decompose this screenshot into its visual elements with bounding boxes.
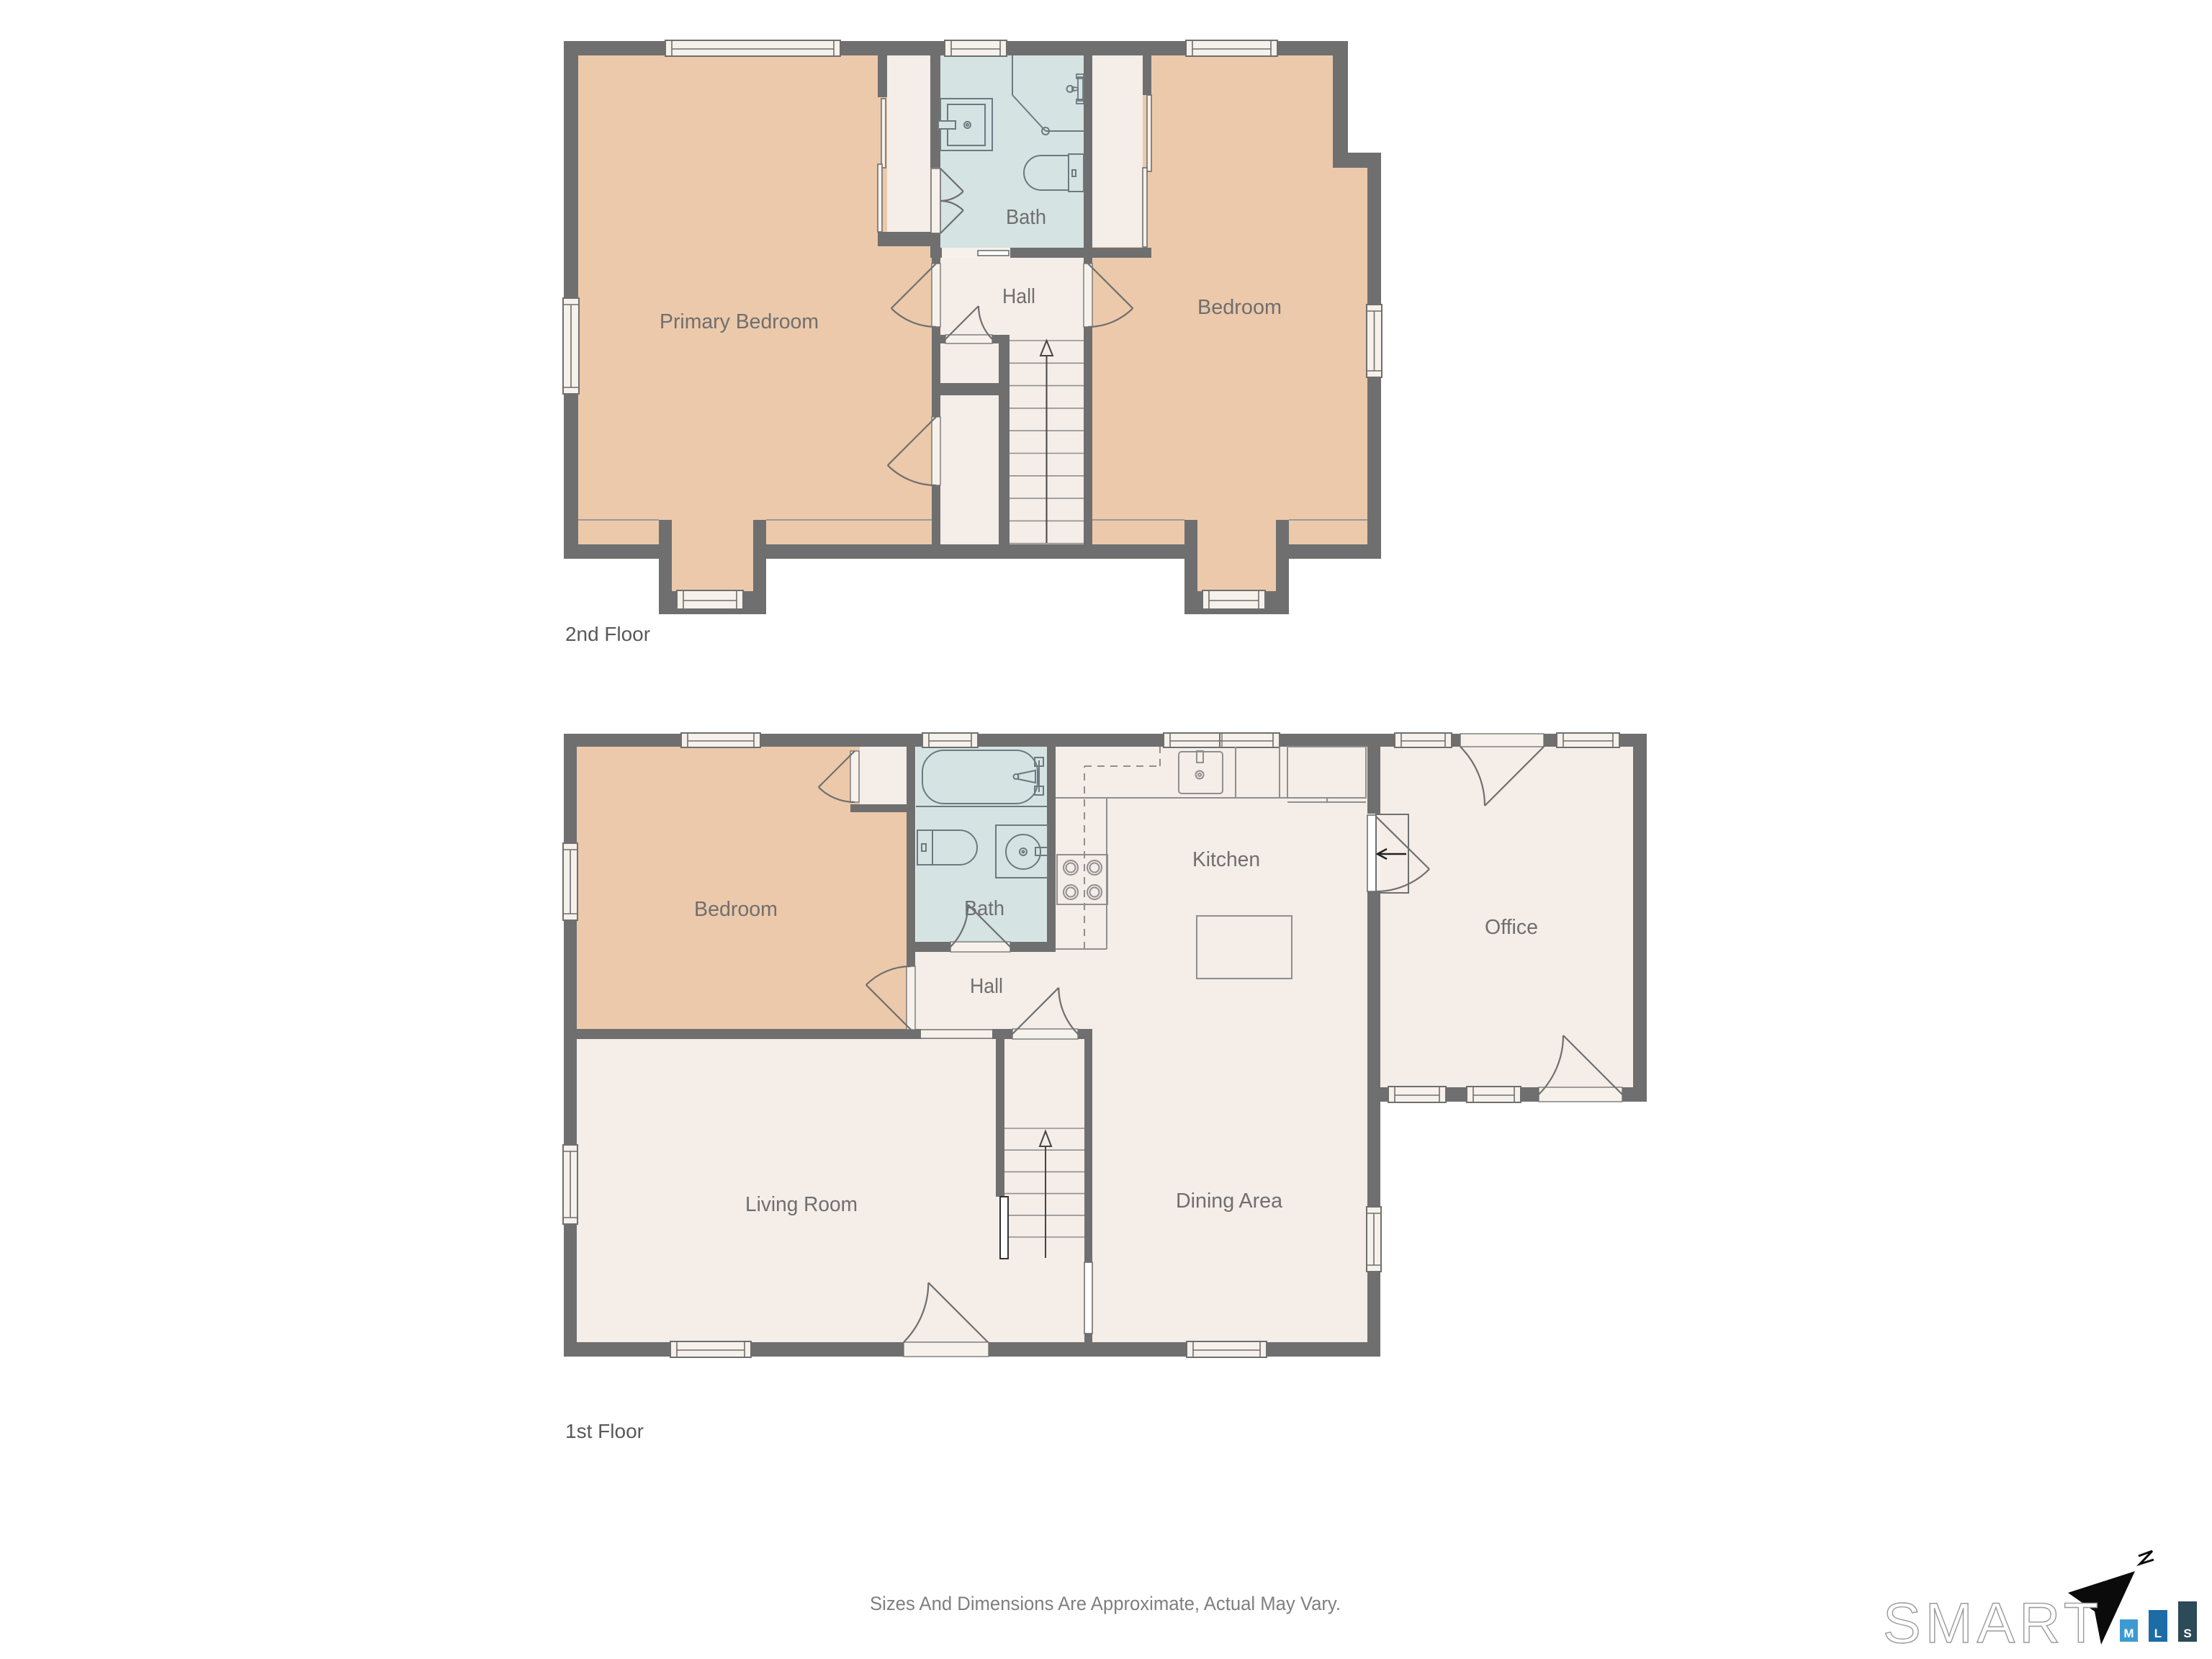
svg-text:Dining Area: Dining Area xyxy=(1176,1190,1283,1213)
svg-text:2nd Floor: 2nd Floor xyxy=(565,623,650,645)
svg-text:SMART: SMART xyxy=(1883,1591,2103,1655)
svg-text:Hall: Hall xyxy=(1002,285,1035,308)
svg-text:Hall: Hall xyxy=(970,975,1003,998)
svg-text:Kitchen: Kitchen xyxy=(1192,848,1260,871)
svg-text:L: L xyxy=(2154,1627,2162,1640)
svg-text:Living Room: Living Room xyxy=(745,1193,858,1216)
svg-text:Bath: Bath xyxy=(1006,206,1046,229)
svg-text:S: S xyxy=(2183,1627,2191,1640)
svg-text:Bedroom: Bedroom xyxy=(694,898,778,921)
svg-text:1st Floor: 1st Floor xyxy=(565,1420,644,1442)
svg-text:Bath: Bath xyxy=(964,897,1004,920)
svg-text:Primary Bedroom: Primary Bedroom xyxy=(660,310,819,333)
svg-text:Bedroom: Bedroom xyxy=(1197,296,1282,319)
svg-text:Sizes And Dimensions Are Appro: Sizes And Dimensions Are Approximate, Ac… xyxy=(870,1593,1341,1614)
svg-text:M: M xyxy=(2123,1627,2134,1640)
svg-text:Office: Office xyxy=(1485,916,1538,939)
